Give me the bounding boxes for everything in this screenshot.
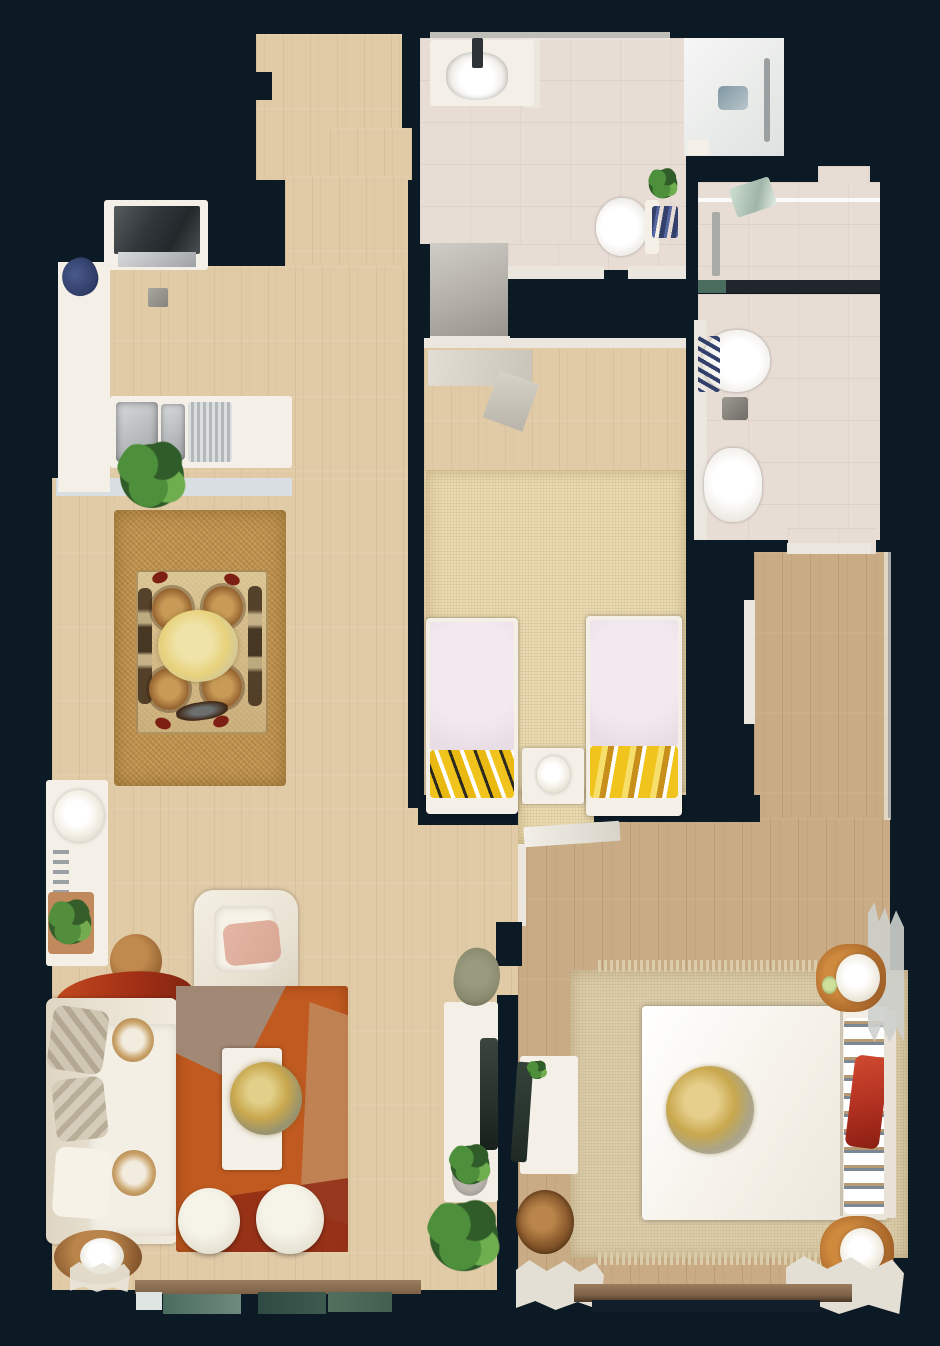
dining-glass-center (158, 610, 238, 682)
ottoman-pouf-1 (178, 1188, 240, 1254)
wall-ensuite-white-line (698, 198, 880, 202)
desk-plant (448, 1142, 492, 1188)
sofa-pillow-taupe2 (51, 1075, 109, 1142)
stove-front-strip (118, 252, 196, 267)
nightstand-top-candle (822, 976, 837, 994)
master-bed-fold (840, 1008, 843, 1216)
stove-cooktop (114, 206, 200, 254)
sink-drainboard (188, 402, 232, 462)
master-window-dark (592, 1300, 820, 1312)
sofa-pillow-rattan2 (112, 1150, 156, 1196)
succulents (48, 896, 92, 950)
wicker-basket (516, 1190, 574, 1254)
shower-rail (764, 58, 770, 142)
walkin-shower-edge (430, 336, 510, 348)
wall-bath1-bottom-r (628, 266, 686, 279)
shower-seat (687, 140, 709, 155)
balcony-glass-1 (163, 1294, 241, 1314)
balcony-glass-3 (328, 1292, 392, 1312)
floor-ensuite-tab-top (818, 166, 870, 184)
kitchen-plant (116, 438, 188, 514)
vanity-faucet (472, 38, 483, 68)
twin-bed-left-pillows (430, 750, 514, 798)
wall-master-corridor-left (744, 600, 755, 724)
console-lamp (54, 790, 104, 842)
bidet (704, 448, 762, 522)
gold-throw (666, 1066, 754, 1154)
ensuite-towel-rail (712, 212, 720, 276)
stool-white-jags (70, 1262, 130, 1292)
dresser-plant (526, 1060, 548, 1080)
wall-master-stub2 (496, 922, 522, 966)
sofa-pillow-white (52, 1146, 113, 1220)
balcony-white-bit (136, 1292, 162, 1310)
floor-vent (148, 288, 168, 307)
nightstand-top-lamp (836, 954, 880, 1002)
bathroom-plant (648, 166, 678, 202)
console-tray-items (53, 850, 69, 894)
blue-towels (652, 206, 678, 238)
kids-nightstand-lamp (537, 756, 570, 793)
wall-master-corridor-top (787, 543, 871, 554)
kitchen-counter-left (58, 262, 110, 492)
armchair-blush-pillow (222, 919, 282, 967)
floor-kitchen[interactable] (106, 266, 406, 402)
ensuite-drain (722, 397, 748, 420)
desk-chair-dark (480, 1038, 498, 1150)
balcony-glass-2 (258, 1292, 326, 1314)
floorplan-canvas (0, 0, 940, 1346)
brass-bowl (230, 1062, 302, 1135)
twin-bed-right-pillows (590, 746, 678, 798)
dining-table-edge-right (248, 586, 262, 706)
shower-glass-green (698, 280, 726, 293)
ottoman-pouf-2 (256, 1184, 324, 1254)
sofa-pillow-rattan1 (112, 1018, 154, 1062)
twin-bed-left-duvet (430, 622, 514, 750)
shower-drain (718, 86, 748, 110)
twin-bed-right-duvet (590, 620, 678, 746)
master-rug-fringe-top (598, 960, 842, 972)
sofa-pillow-taupe1 (46, 1004, 110, 1075)
wall-bathroom-top (430, 32, 670, 40)
ensuite-blue-items (698, 336, 720, 392)
floor-plant-big (426, 1196, 502, 1278)
walkin-shower-gray (430, 243, 508, 339)
floor-entry-hallway-ext[interactable] (330, 128, 412, 180)
wall-nub-hall (256, 72, 272, 100)
floor-master-corridor[interactable] (754, 552, 888, 824)
wall-master-corridor-right (884, 552, 891, 820)
wall-bath1-bottom-l (508, 266, 604, 279)
